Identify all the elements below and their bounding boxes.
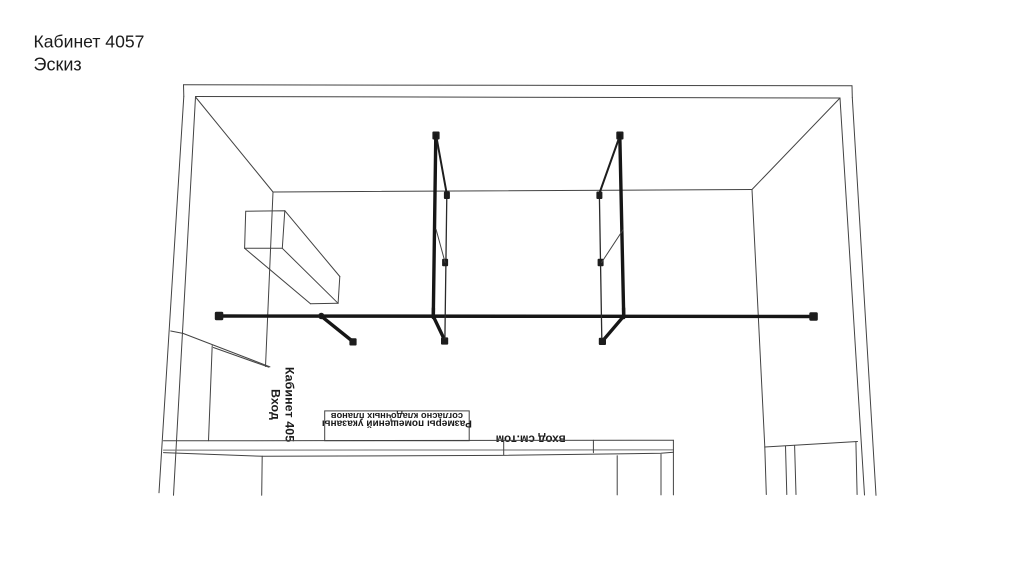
svg-text:вход см.том: вход см.том [496,432,566,445]
svg-text:Кабинет 4057: Кабинет 4057 [34,32,145,52]
svg-text:Вход: Вход [268,389,282,420]
svg-text:Эскиз: Эскиз [34,55,82,75]
svg-text:согласно кладочных планов: согласно кладочных планов [331,411,463,421]
svg-text:Кабинет 405: Кабинет 405 [283,367,297,442]
